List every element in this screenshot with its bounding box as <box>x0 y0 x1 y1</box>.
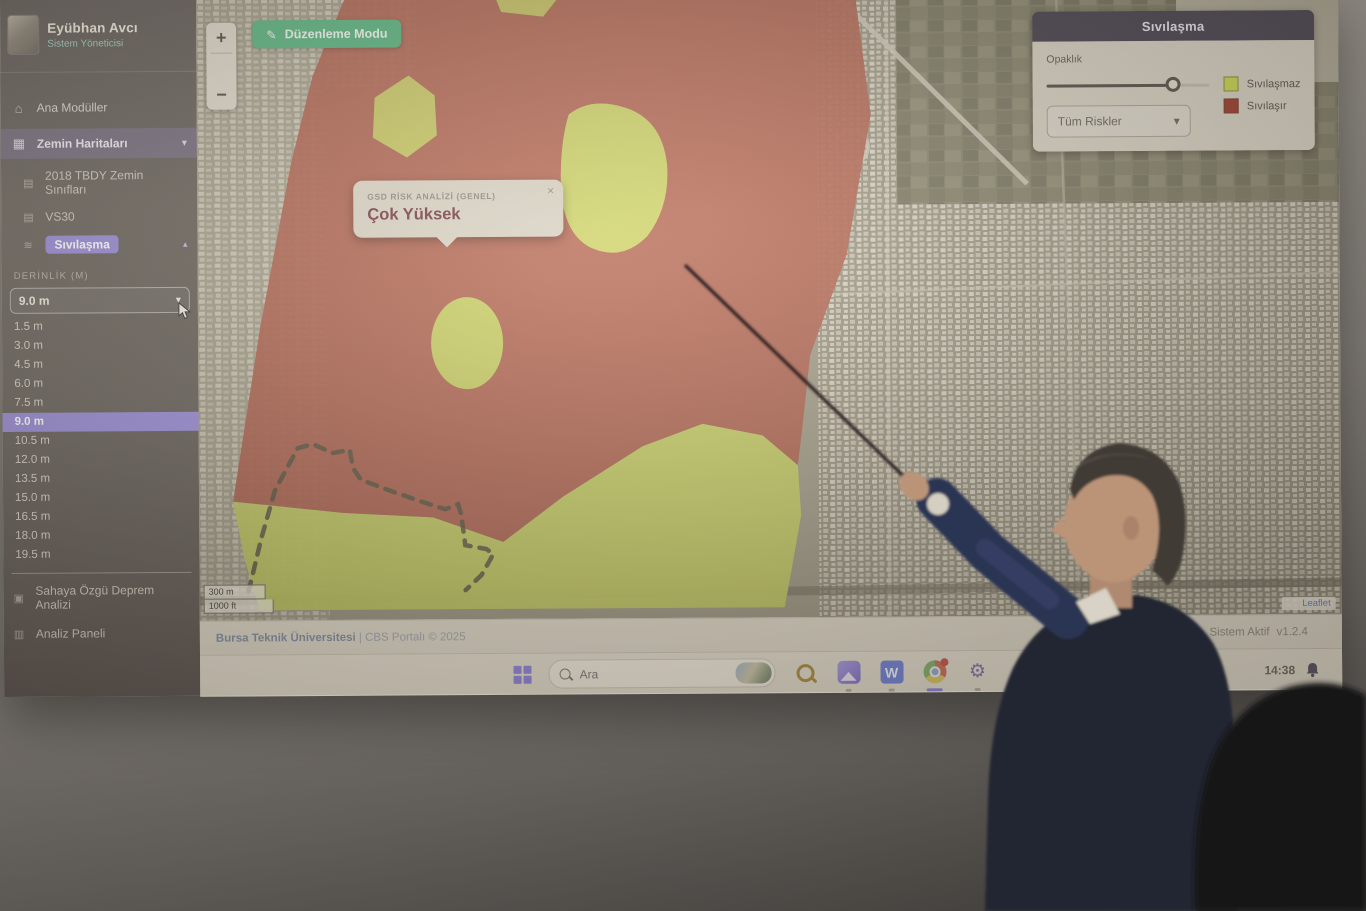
depth-option[interactable]: 10.5 m <box>3 431 199 451</box>
depth-option[interactable]: 4.5 m <box>2 355 198 375</box>
legend-label: Sıvılaşmaz <box>1247 78 1301 90</box>
risk-popup-title: GSD RİSK ANALİZİ (GENEL) <box>367 191 549 202</box>
sidebar-subitem-label: VS30 <box>45 210 74 224</box>
user-name: Eyübhan Avcı <box>47 20 138 36</box>
slider-thumb[interactable] <box>1166 77 1181 92</box>
doc-icon: ▤ <box>23 210 36 223</box>
open-app-indicator <box>975 688 981 691</box>
edit-mode-label: Düzenleme Modu <box>285 27 388 42</box>
map-zoom-control: + − <box>206 23 237 110</box>
photos-icon <box>837 661 860 684</box>
open-app-indicator <box>889 688 895 691</box>
sidebar-item-label: Ana Modüller <box>37 100 108 114</box>
taskbar-app-chrome[interactable] <box>921 657 947 687</box>
search-icon <box>560 669 571 680</box>
map-canvas[interactable]: + − ✎ Düzenleme Modu GSD RİSK ANALİZİ (G… <box>196 0 1342 621</box>
sidebar-subitem-vs30[interactable]: ▤ VS30 <box>1 202 197 231</box>
user-profile[interactable]: Eyübhan Avcı Sistem Yöneticisi <box>0 0 196 66</box>
depth-option[interactable]: 7.5 m <box>2 393 198 413</box>
zoom-in-button[interactable]: + <box>206 23 236 53</box>
status-dot-icon <box>1195 629 1202 636</box>
cursor-icon <box>177 302 193 322</box>
attribution: Bursa Teknik Üniversitesi | CBS Portalı … <box>200 631 466 645</box>
sidebar-subitem-label: Sıvılaşma <box>45 235 118 253</box>
chevron-up-icon: ▴ <box>183 238 188 249</box>
divider <box>12 572 192 574</box>
sidebar-subitem-sivilasma[interactable]: ≋ Sıvılaşma ▴ <box>1 230 197 259</box>
taskbar-app-search-tool[interactable] <box>792 658 818 688</box>
legend-swatch-yellow <box>1224 76 1239 91</box>
scale-imperial: 1000 ft <box>204 599 274 613</box>
avatar <box>8 16 38 54</box>
bell-icon[interactable] <box>1305 661 1320 677</box>
edit-mode-button[interactable]: ✎ Düzenleme Modu <box>252 20 401 49</box>
doc-icon: ▤ <box>23 176 36 189</box>
chevron-down-icon: ▾ <box>1174 114 1180 128</box>
attribution-org: Bursa Teknik Üniversitesi <box>216 632 356 645</box>
chart-icon: ▣ <box>14 591 27 604</box>
scale-metric: 300 m <box>204 584 266 599</box>
system-status: Sistem Aktif v1.2.4 <box>1195 626 1307 639</box>
depth-option-selected[interactable]: 9.0 m <box>3 412 199 432</box>
search-highlight-thumbnail[interactable] <box>735 662 771 683</box>
liquefaction-panel: Sıvılaşma Opaklık Tüm Riskler ▾ <box>1032 10 1315 152</box>
sidebar-item-label: Sahaya Özgü Deprem Analizi <box>35 583 189 612</box>
legend: Sıvılaşmaz Sıvılaşır <box>1224 52 1301 136</box>
active-app-indicator <box>927 688 943 691</box>
risk-popup-value: Çok Yüksek <box>367 205 549 225</box>
pencil-icon: ✎ <box>266 27 277 42</box>
legend-label: Sıvılaşır <box>1247 100 1287 112</box>
ukraine-flag-icon <box>1287 600 1298 608</box>
depth-option[interactable]: 13.5 m <box>3 469 199 489</box>
user-role: Sistem Yöneticisi <box>47 38 138 50</box>
close-icon[interactable]: × <box>547 184 554 198</box>
depth-select[interactable]: 9.0 m ▾ <box>10 287 190 314</box>
depth-option[interactable]: 3.0 m <box>2 336 198 356</box>
taskbar: W ⚙ 14:38 <box>200 648 1342 697</box>
layers-icon: ▦ <box>11 136 27 152</box>
depth-option[interactable]: 15.0 m <box>3 488 199 508</box>
projected-screen: Eyübhan Avcı Sistem Yöneticisi ⌂ Ana Mod… <box>0 0 1342 697</box>
depth-section-label: DERİNLİK (M) <box>14 270 186 282</box>
panel-title: Sıvılaşma <box>1032 10 1314 42</box>
taskbar-clock[interactable]: 14:38 <box>1264 663 1295 677</box>
magnifier-icon <box>796 664 814 682</box>
taskbar-app-word[interactable]: W <box>878 657 904 687</box>
notification-badge <box>940 658 948 666</box>
divider <box>0 71 196 73</box>
taskbar-search[interactable] <box>548 658 775 688</box>
depth-option[interactable]: 18.0 m <box>3 526 199 546</box>
photo-of-projected-screen: Eyübhan Avcı Sistem Yöneticisi ⌂ Ana Mod… <box>0 0 1366 911</box>
sidebar-subitem-tbdy[interactable]: ▤ 2018 TBDY Zemin Sınıfları <box>1 168 197 197</box>
leaflet-attribution[interactable]: Leaflet <box>1282 597 1336 610</box>
map-scale-bar: 300 m 1000 ft <box>204 584 274 613</box>
leaflet-label: Leaflet <box>1302 598 1331 609</box>
legend-item: Sıvılaşmaz <box>1224 76 1301 91</box>
sidebar-item-ana-moduller[interactable]: ⌂ Ana Modüller <box>1 92 197 123</box>
depth-selected-value: 9.0 m <box>19 294 50 308</box>
legend-swatch-red <box>1224 98 1239 113</box>
zoom-spacer <box>206 54 236 80</box>
taskbar-app-settings[interactable]: ⚙ <box>964 656 990 686</box>
depth-option[interactable]: 12.0 m <box>3 450 199 470</box>
word-icon: W <box>880 660 903 683</box>
sidebar-item-zemin-haritalari[interactable]: ▦ Zemin Haritaları ▾ <box>1 128 197 159</box>
depth-option-list: 1.5 m 3.0 m 4.5 m 6.0 m 7.5 m 9.0 m 10.5… <box>2 317 200 565</box>
foreground-silhouette <box>1194 683 1366 911</box>
gear-icon: ⚙ <box>969 662 986 681</box>
status-label: Sistem Aktif <box>1209 626 1269 638</box>
risk-filter-value: Tüm Riskler <box>1058 114 1122 128</box>
attribution-rest: | CBS Portalı © 2025 <box>356 631 466 644</box>
search-input[interactable] <box>577 665 728 682</box>
panel-icon: ▥ <box>14 627 27 640</box>
wave-icon: ≋ <box>23 238 36 251</box>
status-version: v1.2.4 <box>1277 626 1308 638</box>
risk-filter-select[interactable]: Tüm Riskler ▾ <box>1047 105 1191 138</box>
taskbar-app-photos[interactable] <box>835 657 861 687</box>
sidebar-item-label: Zemin Haritaları <box>37 136 128 151</box>
depth-option[interactable]: 16.5 m <box>3 507 199 527</box>
sidebar-item-analiz-paneli[interactable]: ▥ Analiz Paneli <box>4 619 200 648</box>
sidebar: Eyübhan Avcı Sistem Yöneticisi ⌂ Ana Mod… <box>0 0 200 697</box>
risk-popup: GSD RİSK ANALİZİ (GENEL) Çok Yüksek × <box>353 180 563 238</box>
chevron-down-icon: ▾ <box>182 137 187 148</box>
slider-fill <box>1047 84 1174 88</box>
opacity-slider[interactable] <box>1046 77 1209 94</box>
depth-option[interactable]: 19.5 m <box>3 545 199 565</box>
sidebar-item-deprem-analizi[interactable]: ▣ Sahaya Özgü Deprem Analizi <box>4 583 200 612</box>
depth-option[interactable]: 1.5 m <box>2 317 198 337</box>
opacity-label: Opaklık <box>1046 53 1209 66</box>
open-app-indicator <box>846 688 852 691</box>
depth-option[interactable]: 6.0 m <box>2 374 198 394</box>
home-icon: ⌂ <box>11 100 27 115</box>
sidebar-item-label: Analiz Paneli <box>36 626 105 640</box>
zoom-out-button[interactable]: − <box>206 80 236 110</box>
legend-item: Sıvılaşır <box>1224 98 1301 113</box>
main-area: + − ✎ Düzenleme Modu GSD RİSK ANALİZİ (G… <box>196 0 1342 696</box>
sidebar-subitem-label: 2018 TBDY Zemin Sınıfları <box>45 168 187 197</box>
start-button[interactable] <box>513 665 531 683</box>
